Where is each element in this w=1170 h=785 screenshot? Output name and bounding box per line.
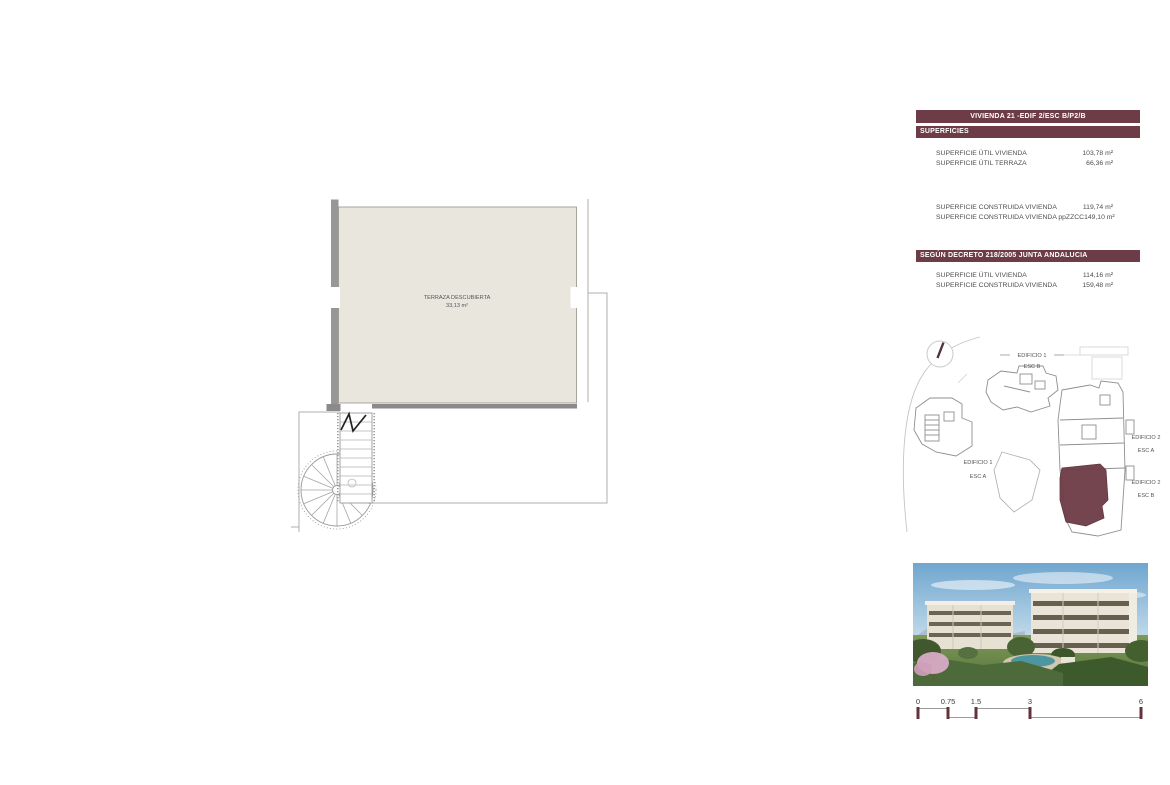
row-label: SUPERFICIE CONSTRUIDA VIVIENDA <box>936 203 1057 213</box>
scale-label-075: 0.75 <box>941 697 956 706</box>
row-value: 103,78 m² <box>1082 149 1113 159</box>
row-value: 114,16 m² <box>1083 271 1113 281</box>
site-plan: EDIFICIO 1 ESC B EDIFICIO 1 ESC A EDIFIC… <box>895 330 1170 545</box>
decreto-rows: SUPERFICIE ÚTIL VIVIENDA 114,16 m² SUPER… <box>936 271 1113 291</box>
row-label: SUPERFICIE ÚTIL TERRAZA <box>936 159 1027 169</box>
row-label: SUPERFICIE CONSTRUIDA VIVIENDA <box>936 281 1057 291</box>
label-edificio1-top: EDIFICIO 1 <box>1018 353 1047 359</box>
table-row: SUPERFICIE CONSTRUIDA VIVIENDA 159,48 m² <box>936 281 1113 291</box>
superficies-header-bar: SUPERFICIES <box>916 126 1140 138</box>
row-value: 149,10 m² <box>1084 213 1115 223</box>
building1-escA-outline <box>914 398 972 456</box>
north-compass-icon <box>927 341 953 367</box>
room-label: TERRAZA DESCUBIERTA <box>424 295 491 301</box>
terrace-bottom-wall <box>372 404 577 409</box>
table-row: SUPERFICIE ÚTIL VIVIENDA 103,78 m² <box>936 149 1113 159</box>
row-value: 119,74 m² <box>1083 203 1113 213</box>
row-label: SUPERFICIE ÚTIL VIVIENDA <box>936 271 1027 281</box>
building1-escB-outline <box>986 366 1058 412</box>
label-edificio1-top-esc: ESC B <box>1024 364 1041 370</box>
terrace-opening-right <box>571 287 580 308</box>
unit-title-bar: VIVIENDA 21 -EDIF 2/ESC B/P2/B <box>916 110 1140 123</box>
terrace-opening-left <box>330 287 340 308</box>
decreto-header-bar: SEGÚN DECRETO 218/2005 JUNTA ANDALUCIA <box>916 250 1140 262</box>
row-value: 66,36 m² <box>1086 159 1113 169</box>
scale-bar: 0 0.75 1.5 3 6 <box>900 692 1160 727</box>
row-label: SUPERFICIE ÚTIL VIVIENDA <box>936 149 1027 159</box>
row-label: SUPERFICIE CONSTRUIDA VIVIENDA ppZZCC <box>936 213 1084 223</box>
superficies-construida-rows: SUPERFICIE CONSTRUIDA VIVIENDA 119,74 m²… <box>936 203 1113 223</box>
superficies-util-rows: SUPERFICIE ÚTIL VIVIENDA 103,78 m² SUPER… <box>936 149 1113 169</box>
label-edificio2-a: EDIFICIO 2 <box>1132 435 1161 441</box>
site-pool-outline <box>994 452 1040 512</box>
scale-label-15: 1.5 <box>971 697 981 706</box>
photo-right-building <box>1029 589 1137 653</box>
scale-label-3: 3 <box>1028 697 1032 706</box>
floor-plan: TERRAZA DESCUBIERTA 33,13 m² <box>270 180 630 550</box>
label-edificio2-b-esc: ESC B <box>1138 493 1155 499</box>
label-edificio1-left: EDIFICIO 1 <box>964 460 993 466</box>
row-value: 159,48 m² <box>1082 281 1113 291</box>
photo-left-building <box>925 601 1015 649</box>
scale-label-0: 0 <box>916 697 920 706</box>
table-row: SUPERFICIE CONSTRUIDA VIVIENDA ppZZCC 14… <box>936 213 1113 223</box>
terrace-wall-foot <box>327 404 341 411</box>
label-edificio2-b: EDIFICIO 2 <box>1132 480 1161 486</box>
room-area-label: 33,13 m² <box>446 303 468 309</box>
highlighted-unit <box>1060 464 1108 526</box>
scale-label-6: 6 <box>1139 697 1143 706</box>
table-row: SUPERFICIE CONSTRUIDA VIVIENDA 119,74 m² <box>936 203 1113 213</box>
table-row: SUPERFICIE ÚTIL TERRAZA 66,36 m² <box>936 159 1113 169</box>
project-render-photo <box>913 563 1148 686</box>
table-row: SUPERFICIE ÚTIL VIVIENDA 114,16 m² <box>936 271 1113 281</box>
label-edificio1-left-esc: ESC A <box>970 474 987 480</box>
label-edificio2-a-esc: ESC A <box>1138 448 1155 454</box>
